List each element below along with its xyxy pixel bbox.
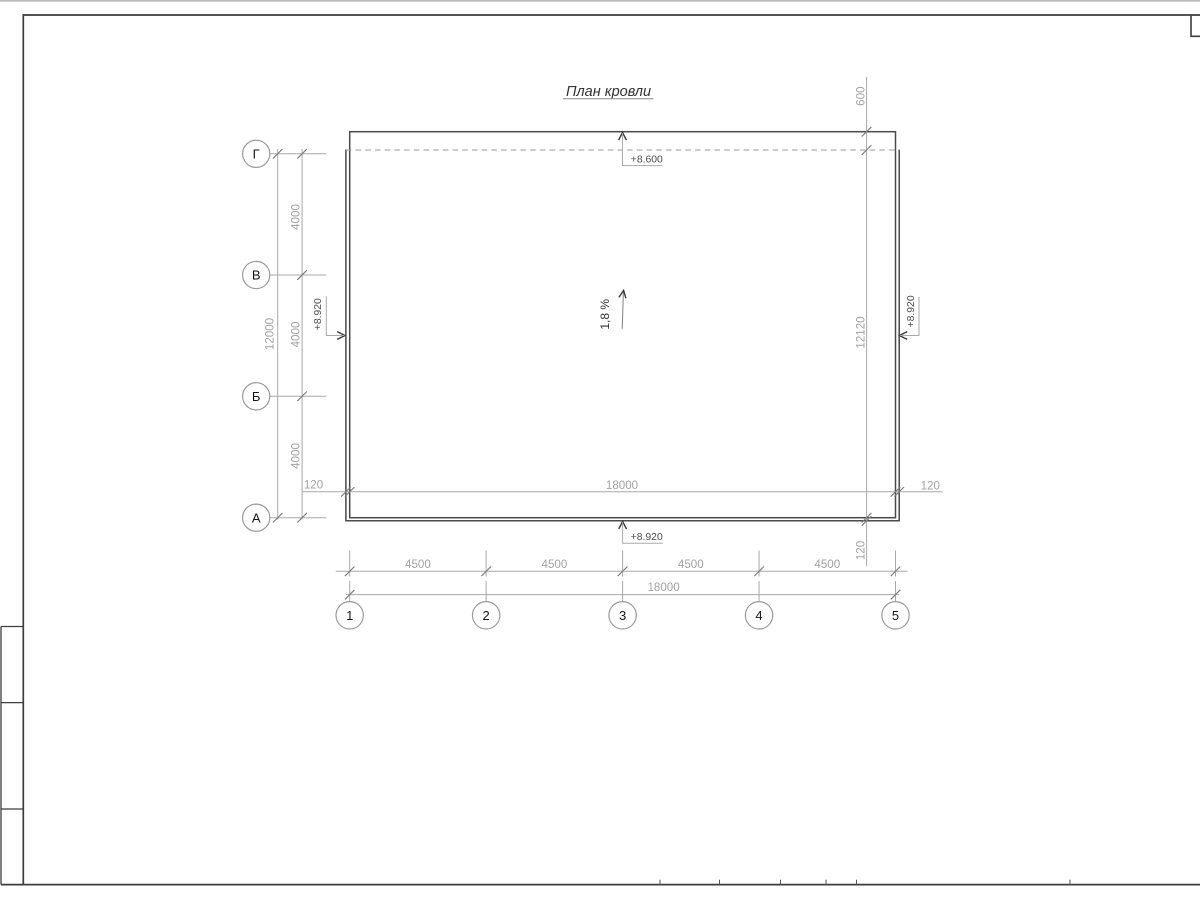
svg-text:120: 120: [854, 541, 867, 560]
svg-text:Б: Б: [252, 389, 261, 404]
svg-text:2: 2: [483, 608, 490, 623]
svg-text:12000: 12000: [264, 318, 277, 350]
svg-text:4000: 4000: [289, 322, 302, 348]
svg-text:18000: 18000: [606, 479, 638, 492]
svg-text:5: 5: [892, 608, 899, 623]
svg-text:+8.920: +8.920: [906, 295, 917, 327]
svg-text:4000: 4000: [289, 443, 302, 469]
svg-text:4500: 4500: [405, 558, 431, 571]
svg-text:4500: 4500: [814, 558, 840, 571]
svg-text:12120: 12120: [854, 316, 867, 348]
svg-text:+8.600: +8.600: [631, 154, 663, 165]
svg-text:4: 4: [755, 608, 762, 623]
svg-text:План кровли: План кровли: [566, 84, 651, 100]
svg-text:Г: Г: [253, 147, 260, 162]
svg-text:4000: 4000: [289, 204, 302, 230]
svg-text:600: 600: [854, 87, 867, 106]
svg-text:4500: 4500: [542, 558, 568, 571]
svg-text:1: 1: [346, 608, 353, 623]
svg-text:А: А: [252, 510, 261, 525]
svg-text:3: 3: [619, 608, 626, 623]
svg-text:+8.920: +8.920: [631, 532, 663, 543]
svg-text:120: 120: [921, 480, 940, 493]
svg-text:120: 120: [304, 478, 323, 491]
svg-text:4500: 4500: [678, 558, 704, 571]
svg-text:В: В: [252, 268, 261, 283]
svg-text:18000: 18000: [647, 581, 679, 594]
svg-text:1,8 %: 1,8 %: [598, 299, 612, 330]
svg-text:+8.920: +8.920: [313, 298, 324, 330]
